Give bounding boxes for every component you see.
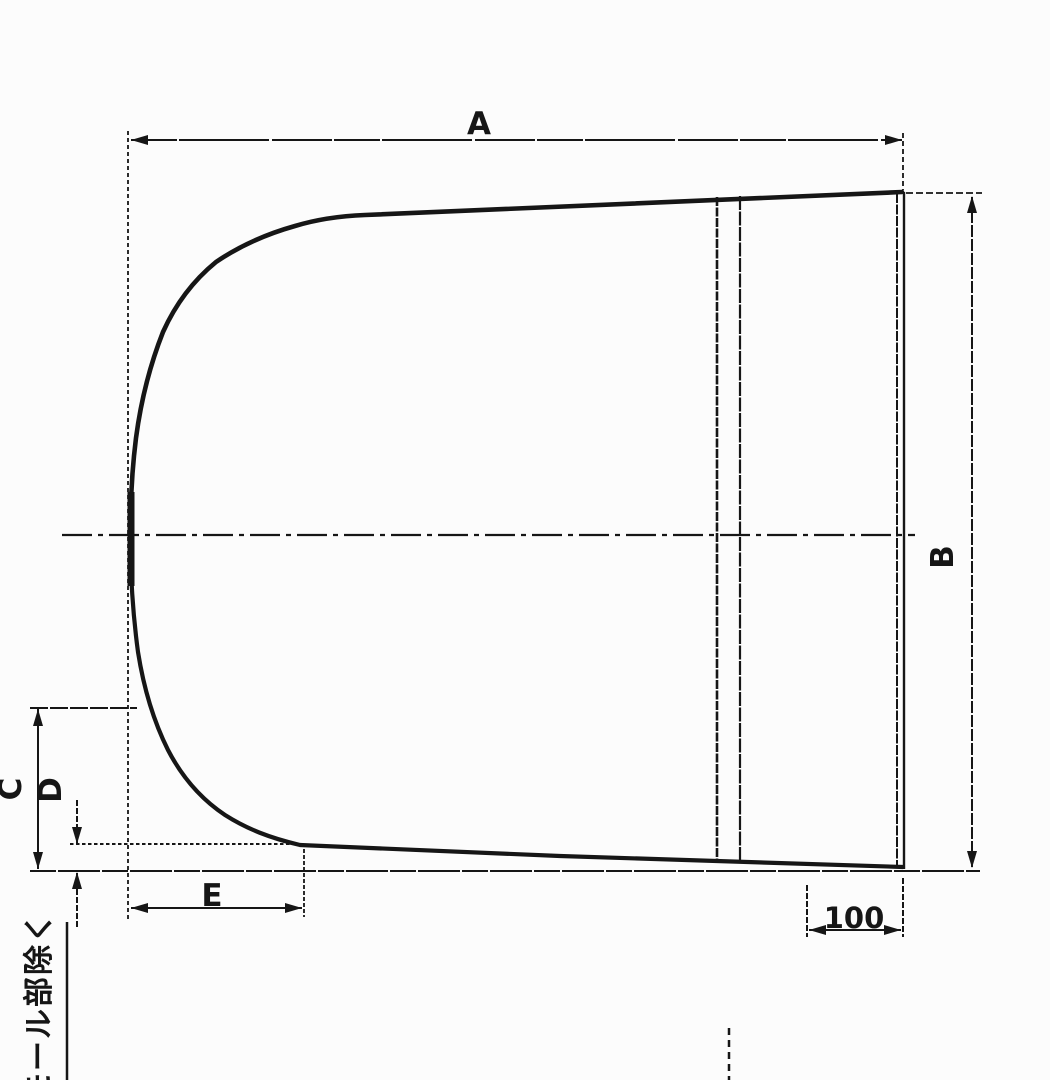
arrowhead-e-left: [131, 903, 148, 913]
dim-label-a: A: [467, 106, 491, 142]
dim-label-b: B: [925, 545, 961, 569]
arrowhead-b-top: [967, 196, 977, 213]
arrowhead-100-right: [884, 925, 901, 935]
arrowhead-c-top: [33, 709, 43, 726]
dim-label-100: 100: [824, 901, 885, 935]
technical-drawing-canvas: A B C D E 100 モール部除く: [0, 0, 1050, 1080]
arrowhead-a-left: [131, 135, 148, 145]
arrowhead-d-down: [72, 827, 82, 844]
part-outline-top: [131, 192, 902, 540]
arrowhead-c-bottom: [33, 852, 43, 869]
note-text: モール部除く: [22, 911, 57, 1080]
arrowhead-a-right: [885, 135, 902, 145]
dim-label-d: D: [33, 777, 69, 803]
dim-label-c: C: [0, 778, 29, 801]
drawing-sheet: A B C D E 100 モール部除く: [0, 0, 1050, 1080]
dim-label-e: E: [201, 878, 222, 914]
part-outline-bottom: [131, 540, 903, 867]
arrowhead-e-right: [285, 903, 302, 913]
arrowhead-d-up: [72, 872, 82, 889]
arrowhead-b-bottom: [967, 851, 977, 868]
